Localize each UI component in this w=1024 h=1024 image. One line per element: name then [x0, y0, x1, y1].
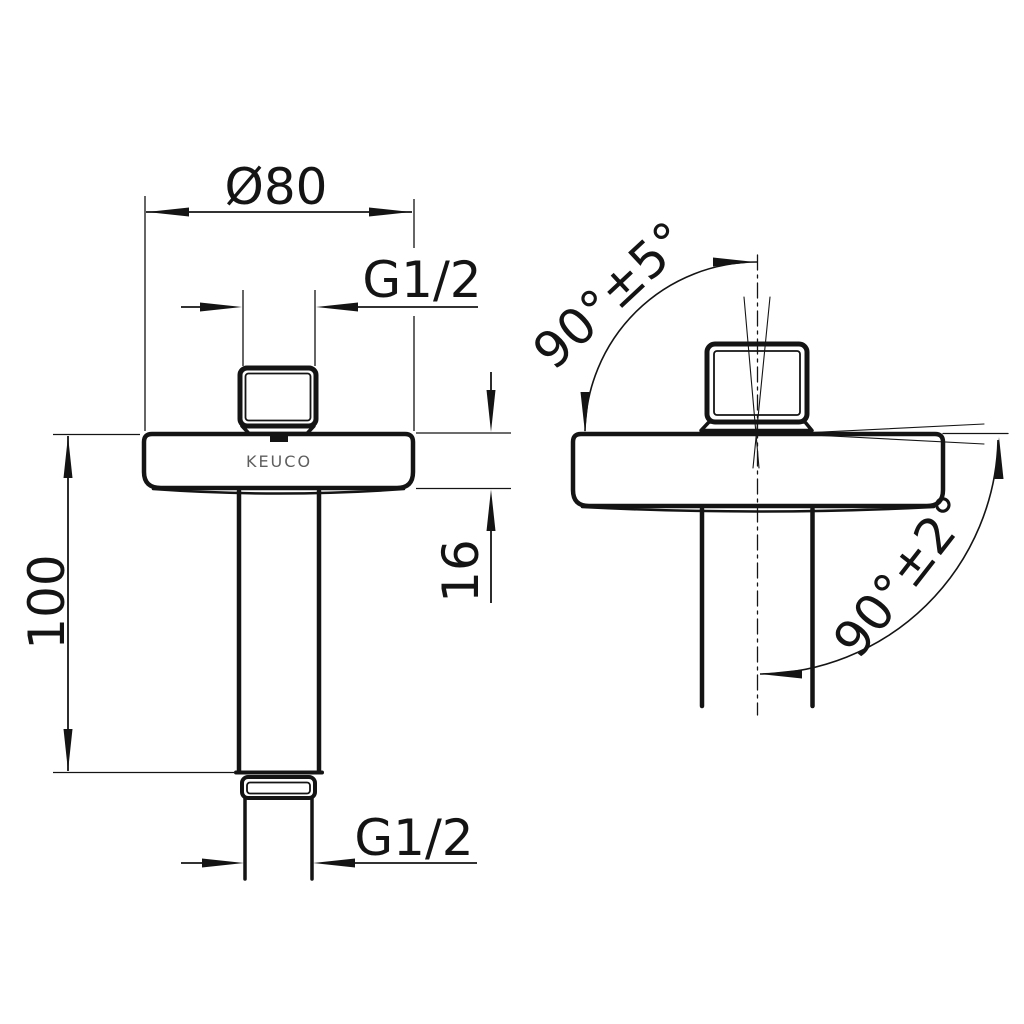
dim-length: 100: [18, 435, 234, 773]
side-dimensions: 90°±5° 90°±2°: [522, 210, 1003, 678]
dim-angle-pipe: 90°±2°: [760, 437, 1004, 679]
dim-angle-nut: 90°±5°: [522, 210, 757, 433]
front-end-collar: [242, 777, 315, 798]
front-nut-chamfer-line: [246, 374, 311, 421]
arrowhead: [581, 392, 590, 433]
arrowhead: [200, 303, 242, 312]
flange-height-label: 16: [432, 539, 490, 603]
front-nut-outline: [240, 368, 316, 426]
arrowhead: [313, 859, 355, 868]
arrowhead: [316, 303, 358, 312]
side-view: [573, 255, 1008, 715]
brand-logo: KEUCO: [246, 452, 312, 471]
dim-flange-height: 16: [416, 372, 511, 603]
arrowhead: [713, 258, 755, 267]
angle-pipe-label: 90°±2°: [822, 485, 983, 668]
arrowhead: [147, 208, 189, 217]
arrowhead: [369, 208, 411, 217]
thread-top-label: G1/2: [362, 251, 481, 309]
dim-thread-top: G1/2: [181, 251, 482, 366]
angle-nut-label: 90°±5°: [522, 210, 699, 380]
side-nut-skirt: [701, 422, 812, 431]
technical-drawing-canvas: KEUCO Ø80 G1/2: [0, 0, 1024, 1024]
arrowhead: [202, 859, 244, 868]
arrowhead: [487, 490, 496, 532]
arrowhead: [760, 670, 802, 679]
dim-thread-bottom: G1/2: [181, 809, 477, 868]
front-dimensions: Ø80 G1/2 100 16: [18, 158, 511, 868]
front-view: [144, 368, 413, 879]
front-end-collar-chamfer: [247, 783, 310, 794]
flange-diameter-label: Ø80: [225, 158, 328, 216]
tolerance-line-2deg: [812, 424, 984, 433]
arrowhead: [64, 436, 73, 478]
length-label: 100: [18, 554, 76, 649]
thread-bottom-label: G1/2: [354, 809, 473, 867]
shower-arm-dimension-drawing: KEUCO Ø80 G1/2: [0, 0, 1024, 1024]
tolerance-line-5deg: [753, 297, 770, 468]
tolerance-line-2deg: [812, 435, 984, 444]
arrowhead: [487, 390, 496, 432]
tolerance-line-5deg: [744, 297, 759, 468]
arrowhead: [64, 729, 73, 771]
arrowhead: [995, 437, 1004, 479]
